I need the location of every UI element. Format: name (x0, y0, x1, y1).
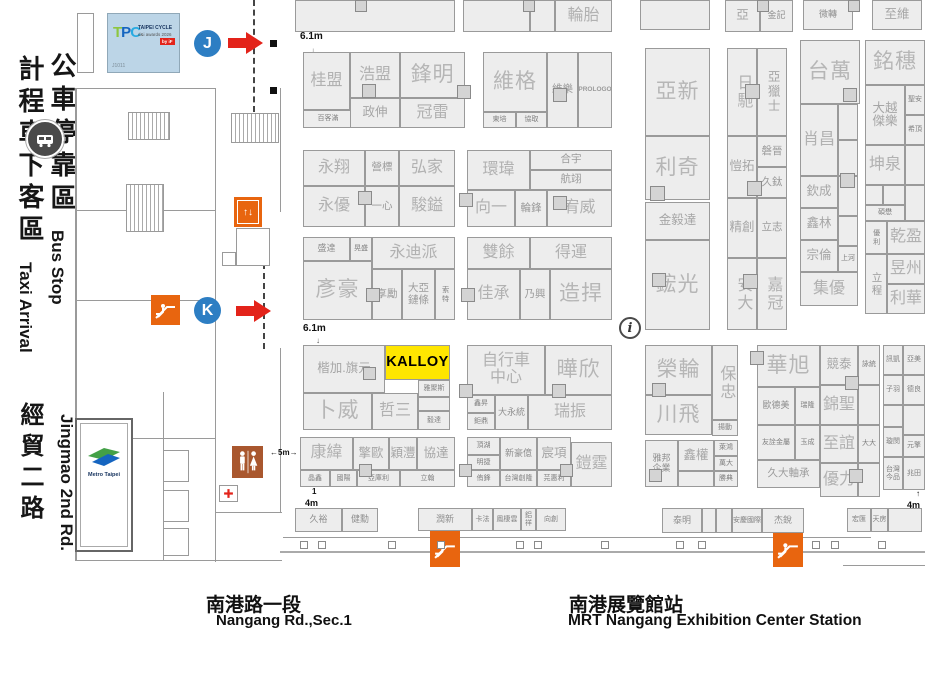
column-marker (845, 376, 859, 390)
aisle-arrow: ↑ (916, 489, 920, 498)
booth (905, 185, 925, 221)
platform-column (601, 541, 609, 549)
escalator-icon (773, 531, 803, 567)
wall-line (75, 560, 282, 561)
wall-line (280, 88, 281, 212)
booth: 揚動 (712, 420, 738, 436)
stairs (128, 112, 170, 140)
booth: 精創 (727, 198, 757, 258)
gate-j-marker: J (194, 30, 221, 57)
column-marker (457, 85, 471, 99)
column-marker (757, 0, 769, 12)
booth: 百客滿 (303, 110, 353, 128)
wall-line (75, 88, 216, 89)
booth: PROLOGO (578, 52, 612, 128)
column-marker (363, 367, 376, 380)
escalator-icon (151, 295, 180, 325)
booth (865, 185, 883, 205)
booth: 卡法 (472, 508, 493, 531)
booth: 大大 (858, 425, 880, 463)
booth: 向創 (536, 508, 566, 531)
entrance-arrow-icon (246, 32, 263, 54)
column-marker (745, 84, 760, 99)
booth: 瑞隆 (795, 387, 820, 425)
structure-block (163, 490, 189, 522)
column-marker (750, 351, 764, 365)
booth: 協達 (417, 437, 455, 470)
booth: 維格 (483, 52, 547, 112)
booth: 得運 (530, 237, 612, 269)
booth: 子羽 (883, 375, 903, 405)
booth: 鋁祥 (521, 508, 536, 531)
booth: 大永統 (495, 395, 528, 430)
booth: 向一 (467, 190, 515, 227)
taipei-cycle-logo-booth: TPC TAIPEI CYCLE d&i awards 2026 by iF J… (107, 13, 180, 73)
booth: 毅達 (418, 411, 450, 430)
metro-station-box: Metro Taipei (75, 418, 133, 552)
column-marker (552, 384, 566, 398)
jingmao-road-en-label: Jingmao 2nd Rd. (56, 414, 76, 551)
booth: 友詮金屬 (757, 425, 795, 460)
column-marker (366, 288, 380, 302)
booth: 立志 (757, 198, 787, 258)
booth: 政伸 (350, 98, 400, 128)
booth: 金毅達 (645, 202, 710, 240)
booth: 亞獵士 (757, 48, 787, 136)
booth: 亞美 (903, 345, 925, 375)
booth (838, 104, 858, 140)
booth: 駿鎰 (399, 186, 455, 227)
booth: 晶鑫 (300, 470, 330, 487)
aisle-width-label: 6.1m (303, 323, 326, 334)
booth: 乾盈 (887, 221, 925, 254)
first-aid-icon (219, 485, 238, 502)
column-marker (652, 273, 666, 287)
boundary-marker (270, 40, 277, 47)
entrance-arrow-icon (228, 38, 246, 48)
gate-k-marker: K (194, 297, 221, 324)
booth-kalloy-highlighted: KALLOY (385, 345, 450, 380)
booth: 坤泉 (865, 145, 905, 185)
booth: 玉成 (795, 425, 820, 460)
column-marker (523, 0, 535, 12)
bus-stop-en-label: Bus Stop (47, 230, 67, 305)
booth (905, 145, 925, 185)
booth: 元擎 (903, 435, 925, 457)
column-marker (840, 173, 855, 188)
platform-column (878, 541, 886, 549)
booth: 哲三 (372, 393, 418, 430)
booth: 萊鴻 (714, 440, 738, 456)
booth: 立程 (865, 254, 887, 314)
stairs (231, 113, 279, 143)
booth: 安慶國際 (732, 508, 762, 533)
booth: 聖安 (905, 85, 925, 115)
platform-column (437, 541, 445, 549)
booth: 杰銳 (762, 508, 804, 533)
booth: 東培 (483, 112, 516, 128)
tpc-subtitle: d&i awards 2026 (138, 32, 172, 37)
hall-boundary-dashed (253, 0, 255, 112)
booth (463, 0, 530, 32)
booth (295, 0, 455, 32)
booth: 頂湖 (467, 437, 500, 455)
column-marker (358, 191, 372, 205)
booth (883, 405, 903, 427)
booth: 雙餘 (467, 237, 530, 269)
booth: 自行車 中心 (467, 345, 545, 395)
aisle-width-label: ←5m→ (270, 448, 298, 457)
booth: 宏匯 (847, 508, 871, 532)
booth: 協取 (516, 112, 547, 128)
platform-column (516, 541, 524, 549)
booth (418, 397, 450, 411)
booth: 彥豪 (303, 261, 372, 320)
booth (702, 508, 716, 533)
booth: 索特 (435, 269, 455, 320)
booth: 川飛 (645, 395, 712, 435)
booth: 台灣 今品 (883, 457, 903, 490)
platform-line (280, 551, 925, 553)
column-marker (553, 88, 567, 102)
platform-column (698, 541, 706, 549)
booth (838, 216, 858, 246)
tpc-logo: TPC (113, 24, 140, 41)
booth: 利華 (887, 284, 925, 314)
booth: 萬大 (714, 456, 738, 471)
booth: 欽成 (800, 176, 838, 208)
booth: 宗倫 (800, 240, 838, 272)
tpc-booth-code: J1011 (112, 63, 125, 69)
column-marker (650, 186, 665, 201)
booth: 鑫林 (800, 208, 838, 240)
tpc-title: TAIPEI CYCLE (138, 25, 172, 31)
booth: 詠統 (858, 345, 880, 385)
booth: 康緯 (300, 437, 353, 470)
by-if-badge: by iF (160, 38, 175, 45)
metro-taipei-logo-icon (86, 448, 122, 468)
exhibition-floor-map: 公車停靠區 Bus Stop 計程車下客區 Taxi Arrival 經貿二路 … (0, 0, 925, 695)
column-marker (355, 0, 367, 12)
booth: 至維 (872, 0, 922, 30)
column-marker (459, 384, 473, 398)
booth: 優利 (865, 221, 887, 254)
taxi-arrival-en-label: Taxi Arrival (15, 262, 35, 353)
booth: 上河 (838, 246, 858, 272)
booth: 航翊 (530, 170, 612, 190)
booth: 肖昌 (800, 104, 838, 176)
booth: 泰明 (662, 508, 702, 533)
platform-column (318, 541, 326, 549)
aisle-number-label: 1 (312, 487, 316, 496)
booth: 輪鋒 (515, 190, 547, 227)
booth: 久大軸承 (757, 460, 820, 488)
restroom-icon (232, 446, 263, 478)
booth: 昱州 (887, 254, 925, 284)
platform-column (676, 541, 684, 549)
column-marker (461, 288, 475, 302)
booth: 雅聚斯 (418, 380, 450, 397)
wall-line (215, 512, 282, 513)
booth: 冠雷 (400, 98, 465, 128)
aisle-width-label: 4m (305, 498, 318, 508)
booth: 晃盛 (350, 237, 372, 261)
platform-column (534, 541, 542, 549)
booth: 環瑋 (467, 150, 530, 190)
booth: 大亞 鏈條 (402, 269, 435, 320)
booth: 瑞振 (528, 395, 612, 430)
booth: 亞 (725, 0, 760, 32)
booth: 華旭 (757, 345, 820, 387)
escalator-icon (430, 531, 460, 567)
column-marker (459, 193, 473, 207)
aisle-width-label: 6.1m (300, 31, 323, 42)
booth: 銘穗 (865, 40, 925, 85)
column-marker (459, 464, 472, 477)
column-marker (652, 383, 666, 397)
booth: 卜威 (303, 393, 372, 430)
booth: 永優 (303, 186, 365, 227)
booth: 穎灃 (389, 437, 417, 470)
column-marker (848, 0, 860, 12)
structure-block (222, 252, 236, 266)
booth: 造捍 (550, 269, 612, 320)
booth: 台灣創隆 (500, 470, 537, 487)
booth: 乃興 (520, 269, 550, 320)
booth: 歐德美 (757, 387, 795, 425)
column-marker (843, 88, 857, 102)
booth: 立翰 (400, 470, 455, 487)
booth (888, 508, 922, 532)
platform-line (843, 565, 925, 566)
mrt-station-en-label: MRT Nangang Exhibition Center Station (568, 612, 862, 630)
taxi-icon (26, 120, 64, 158)
column-marker (849, 469, 863, 483)
booth: 安大 (727, 258, 757, 330)
column-marker (747, 181, 762, 196)
booth: 集優 (800, 272, 858, 306)
booth: 錦聖 (820, 385, 858, 425)
booth: 國陽 (330, 470, 357, 487)
boundary-marker (270, 87, 277, 94)
booth (903, 405, 925, 435)
booth: 璇閔 (883, 427, 903, 457)
structure-block (163, 528, 189, 556)
booth: 德良 (903, 375, 925, 405)
booth: 永迪派 (372, 237, 455, 269)
aisle-arrow: ↓ (316, 336, 320, 345)
booth: 合宇 (530, 150, 612, 170)
wall-line (280, 348, 281, 512)
booth: 鑫權 (678, 440, 714, 471)
booth (838, 140, 858, 176)
booth: 兆田 (903, 457, 925, 490)
booth: 鎧霆 (571, 442, 612, 487)
booth: 訊凱 (883, 345, 903, 375)
elevator-icon: ↑↓ (234, 197, 262, 227)
booth: 桂盟 (303, 52, 350, 110)
booth: 鉅鼎 (467, 413, 495, 430)
jingmao-road-label: 經貿二路 (12, 402, 47, 526)
platform-column (300, 541, 308, 549)
wall-line (215, 88, 216, 562)
booth: 永翔 (303, 150, 365, 186)
booth: 碩懋 (865, 205, 905, 221)
platform-column (388, 541, 396, 549)
structure-block (77, 13, 94, 73)
column-marker (560, 464, 573, 477)
booth: 至誼 (820, 425, 858, 463)
booth: 大越 傑樂 (865, 85, 905, 145)
booth (716, 508, 732, 533)
booth: 久裕 (295, 508, 342, 532)
structure-block (163, 450, 189, 482)
stairs (126, 184, 164, 232)
metro-taipei-label: Metro Taipei (77, 472, 131, 478)
entrance-arrow-icon (236, 306, 254, 316)
booth (883, 185, 905, 205)
platform-column (831, 541, 839, 549)
booth: 營標 (365, 150, 399, 186)
booth: 嘉冠 (757, 258, 787, 330)
booth: 鳳棲雲 (493, 508, 521, 531)
information-icon: i (619, 317, 641, 339)
entrance-arrow-icon (254, 300, 271, 322)
booth: 健勳 (342, 508, 378, 532)
booth: 微轉 (803, 0, 853, 30)
booth: 新豪億 (500, 437, 537, 470)
booth: 亞新 (645, 48, 710, 136)
booth: 盛達 (303, 237, 350, 261)
booth (640, 0, 710, 30)
nangang-road-en-label: Nangang Rd.,Sec.1 (216, 612, 352, 629)
column-marker (553, 196, 567, 210)
elevator-shaft (236, 228, 270, 266)
column-marker (362, 84, 376, 98)
booth: 弘家 (399, 150, 455, 186)
booth: 磐晉 (757, 136, 787, 167)
column-marker (649, 469, 662, 482)
platform-column (812, 541, 820, 549)
booth: 希頂 (905, 115, 925, 145)
booth: 勝典 (714, 471, 738, 487)
booth: 潤新 (418, 508, 472, 531)
booth: 保忠 (712, 345, 738, 420)
booth: 鋒明 (400, 52, 465, 98)
metro-station-inner (80, 423, 128, 547)
booth (858, 385, 880, 425)
column-marker (743, 274, 758, 289)
column-marker (359, 464, 372, 477)
booth (678, 471, 714, 487)
booth: 天房 (871, 508, 888, 532)
booth: 輪胎 (555, 0, 612, 32)
wall-line (75, 300, 216, 301)
